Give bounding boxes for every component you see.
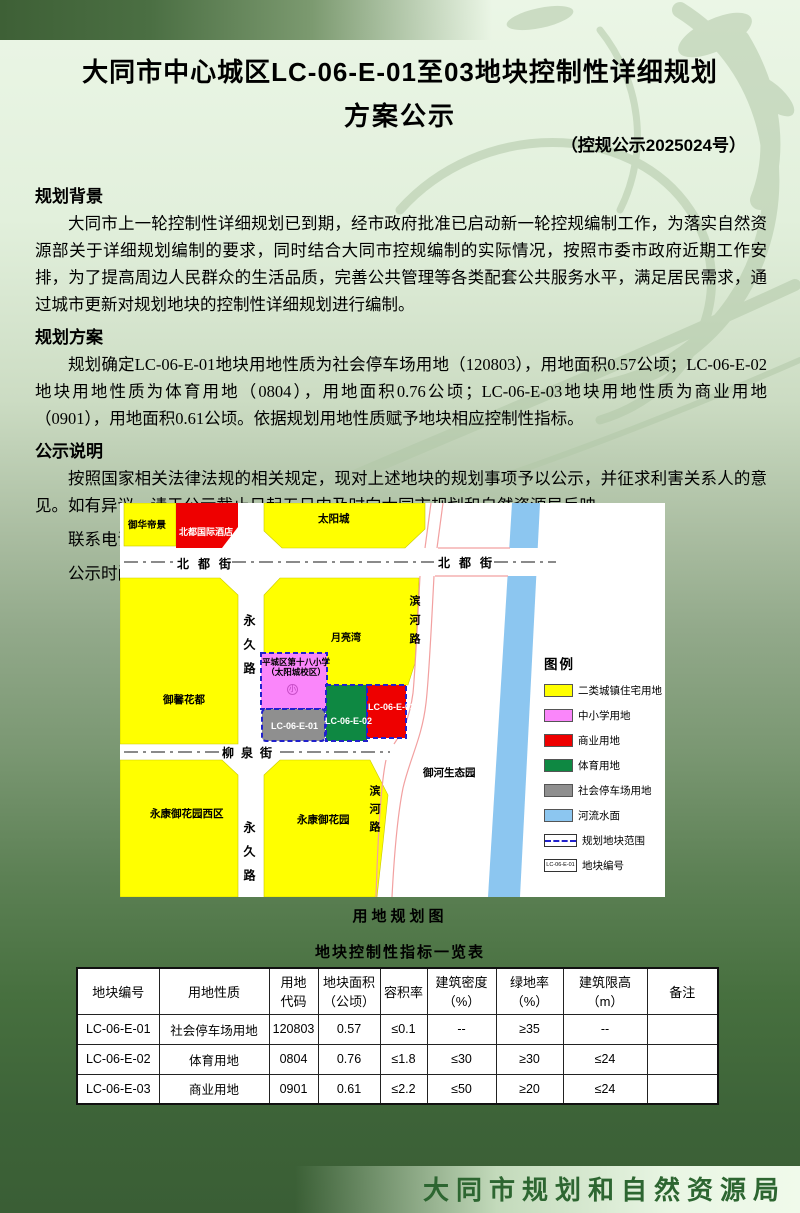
legend-swatch-sports bbox=[544, 759, 573, 772]
legend-item-boundary: 规划地块范围 bbox=[544, 834, 664, 847]
parcel-label-yongkang-west: 永康御花园西区 bbox=[150, 806, 224, 821]
col-remarks: 备注 bbox=[647, 968, 718, 1014]
parcel-label-hotel: 北都国际酒店 bbox=[179, 525, 233, 538]
table-row: LC-06-E-02体育用地 08040.76 ≤1.8≤30 ≥30≤24 bbox=[77, 1044, 718, 1074]
street-beidu-left: 北都街 bbox=[177, 555, 240, 572]
issuing-authority: 大同市规划和自然资源局 bbox=[423, 1170, 786, 1207]
legend-item-residential: 二类城镇住宅用地 bbox=[544, 684, 664, 697]
col-height-limit: 建筑限高 （m） bbox=[563, 968, 647, 1014]
street-beidu-right: 北都街 bbox=[438, 554, 501, 571]
block-lc06e02-shape bbox=[326, 685, 367, 741]
col-land-use: 用地性质 bbox=[159, 968, 269, 1014]
school-symbol: 小 bbox=[287, 684, 298, 695]
legend-swatch-commercial bbox=[544, 734, 573, 747]
section-heading-notes: 公示说明 bbox=[35, 437, 767, 462]
top-accent-bar bbox=[0, 0, 600, 40]
col-density: 建筑密度 （%） bbox=[427, 968, 496, 1014]
legend-swatch-river bbox=[544, 809, 573, 822]
parcel-label-yueliangwan: 月亮湾 bbox=[331, 629, 361, 644]
map-caption: 用地规划图 bbox=[0, 905, 800, 926]
parcel-label-yongkang: 永康御花园 bbox=[297, 812, 350, 827]
col-block-id: 地块编号 bbox=[77, 968, 159, 1014]
parcel-label-yuxin: 御馨花都 bbox=[163, 692, 205, 707]
table-title: 地块控制性指标一览表 bbox=[0, 941, 800, 962]
legend-swatch-parking bbox=[544, 784, 573, 797]
legend-boundary-sample bbox=[544, 834, 577, 847]
street-binhe-upper: 滨河路 bbox=[406, 595, 422, 652]
parcel-yuxin-shape bbox=[120, 578, 238, 744]
table-header-row: 地块编号 用地性质 用地 代码 地块面积 （公顷） 容积率 建筑密度 （%） 绿… bbox=[77, 968, 718, 1014]
parcel-yongkang-west-shape bbox=[120, 760, 238, 897]
page-title-line1: 大同市中心城区LC-06-E-01至03地块控制性详细规划 bbox=[0, 52, 800, 89]
table-row: LC-06-E-03商业用地 09010.61 ≤2.2≤50 ≥20≤24 bbox=[77, 1074, 718, 1104]
page-background: 大同市中心城区LC-06-E-01至03地块控制性详细规划 方案公示 （控规公示… bbox=[0, 0, 800, 1213]
col-land-code: 用地 代码 bbox=[269, 968, 318, 1014]
legend-item-parking: 社会停车场用地 bbox=[544, 784, 664, 797]
col-green-rate: 绿地率 （%） bbox=[496, 968, 563, 1014]
legend-item-commercial: 商业用地 bbox=[544, 734, 664, 747]
parcel-label-taiyangcheng: 太阳城 bbox=[318, 511, 350, 526]
parcel-label-yuhe-park: 御河生态园 bbox=[423, 765, 476, 780]
street-binhe-lower: 滨河路 bbox=[366, 785, 382, 839]
legend-item-river: 河流水面 bbox=[544, 809, 664, 822]
parcel-label-yuhua: 御华帝景 bbox=[128, 517, 166, 531]
legend-swatch-residential bbox=[544, 684, 573, 697]
street-yongjiu-upper: 永久路 bbox=[241, 614, 258, 686]
legend-title: 图例 bbox=[544, 653, 664, 673]
indicator-table: 地块编号 用地性质 用地 代码 地块面积 （公顷） 容积率 建筑密度 （%） 绿… bbox=[76, 967, 719, 1105]
block-label-lc06e02: LC-06-E-02 bbox=[325, 716, 372, 726]
legend-item-blocknumber: LC-06-E-01 地块编号 bbox=[544, 859, 664, 872]
legend-item-sports: 体育用地 bbox=[544, 759, 664, 772]
col-area: 地块面积 （公顷） bbox=[318, 968, 380, 1014]
parcel-label-school: 平城区第十八小学 （太阳城校区） bbox=[258, 657, 334, 677]
section-heading-background: 规划背景 bbox=[35, 182, 767, 207]
legend-blocknumber-sample: LC-06-E-01 bbox=[544, 859, 577, 872]
land-use-map: 北都街 北都街 永久路 永久路 柳泉街 滨河路 滨河路 御华帝景 北都国际酒店 … bbox=[120, 503, 665, 897]
table-row: LC-06-E-01社会停车场用地 1208030.57 ≤0.1-- ≥35-… bbox=[77, 1014, 718, 1044]
section-heading-plan: 规划方案 bbox=[35, 323, 767, 348]
section-body-background: 大同市上一轮控制性详细规划已到期，经市政府批准已启动新一轮控规编制工作，为落实自… bbox=[35, 210, 767, 318]
street-liuquan: 柳泉街 bbox=[222, 744, 279, 761]
notice-number: （控规公示2025024号） bbox=[561, 131, 746, 156]
col-far: 容积率 bbox=[380, 968, 427, 1014]
legend-item-school: 中小学用地 bbox=[544, 709, 664, 722]
block-label-lc06e03: LC-06-E-03 bbox=[368, 702, 415, 712]
map-legend: 图例 二类城镇住宅用地 中小学用地 商业用地 体育用地 社会停车场用地 bbox=[544, 653, 664, 884]
block-label-lc06e01: LC-06-E-01 bbox=[271, 721, 318, 731]
section-body-plan: 规划确定LC-06-E-01地块用地性质为社会停车场用地（120803），用地面… bbox=[35, 351, 767, 432]
street-yongjiu-lower: 永久路 bbox=[241, 821, 258, 893]
page-title-line2: 方案公示 bbox=[0, 96, 800, 133]
legend-swatch-school bbox=[544, 709, 573, 722]
